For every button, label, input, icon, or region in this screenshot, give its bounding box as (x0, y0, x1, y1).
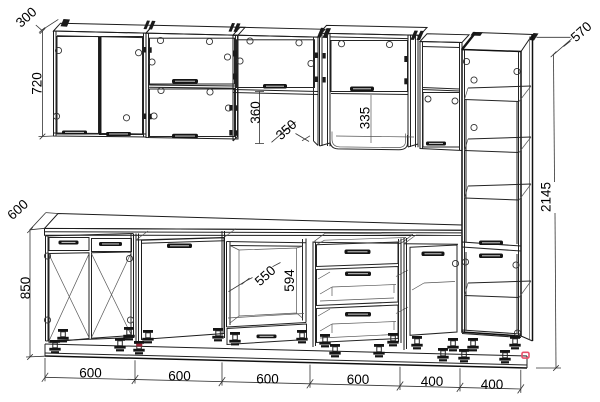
svg-text:594: 594 (282, 269, 297, 292)
svg-text:600: 600 (168, 368, 191, 383)
svg-text:360: 360 (248, 101, 263, 124)
svg-text:600: 600 (256, 371, 279, 386)
svg-text:400: 400 (421, 374, 444, 389)
svg-text:335: 335 (357, 107, 372, 130)
svg-text:2145: 2145 (539, 182, 554, 212)
svg-text:850: 850 (18, 277, 33, 300)
svg-text:600: 600 (79, 365, 102, 380)
svg-text:400: 400 (481, 377, 504, 392)
svg-text:720: 720 (30, 72, 45, 95)
svg-text:600: 600 (347, 372, 370, 387)
